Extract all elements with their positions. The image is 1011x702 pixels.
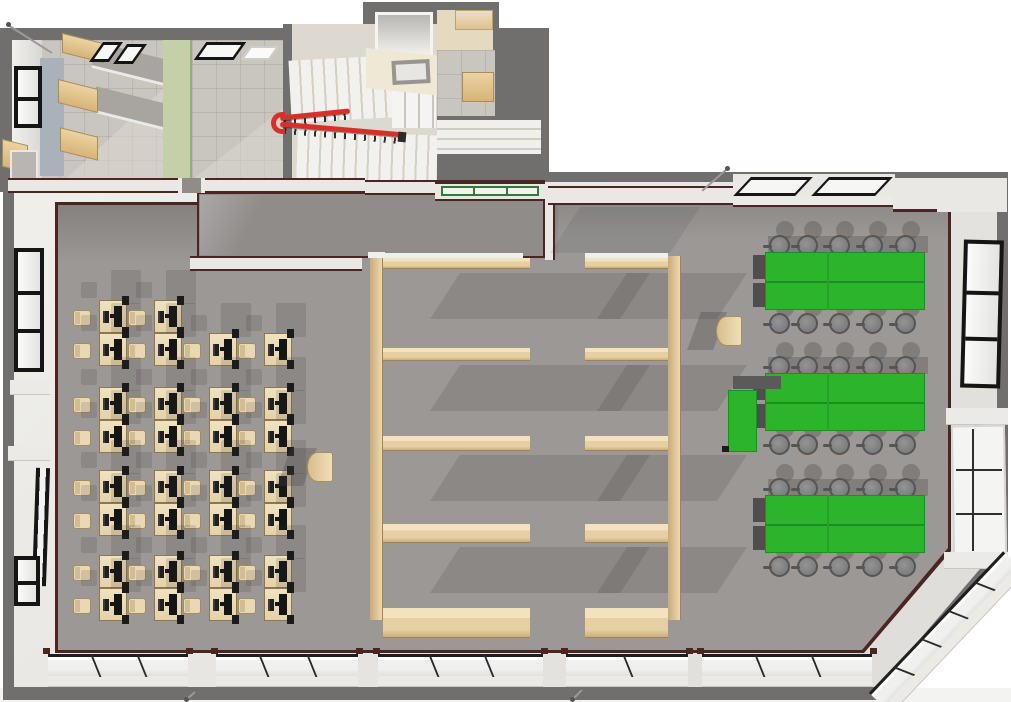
survey-pin — [184, 697, 189, 702]
survey-pin-layer — [0, 0, 1011, 702]
survey-pin — [725, 166, 730, 171]
podium-lectern-right — [716, 316, 742, 346]
pin-leader-line — [7, 24, 52, 54]
pin-leader-line — [701, 168, 727, 191]
survey-pin — [6, 22, 11, 27]
survey-pin — [570, 697, 575, 702]
podium-lectern-left — [307, 452, 333, 482]
floor-plan-canvas[interactable] — [0, 0, 1011, 702]
